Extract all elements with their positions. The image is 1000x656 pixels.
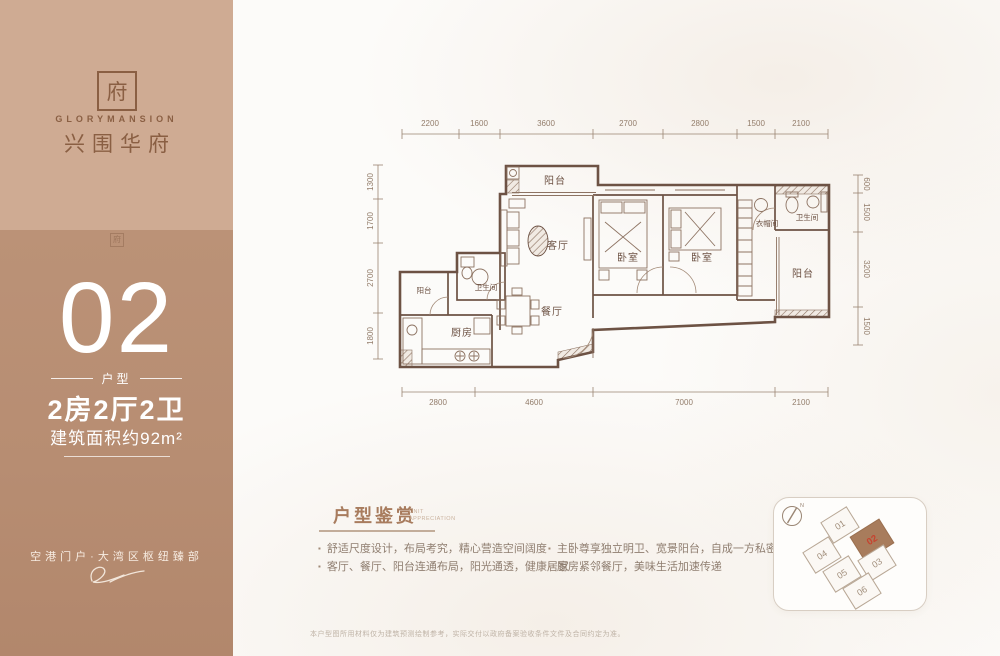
bullet-item: 厨房紧邻餐厅，美味生活加速传递 bbox=[548, 558, 799, 576]
svg-text:1800: 1800 bbox=[366, 327, 375, 345]
svg-text:2700: 2700 bbox=[366, 269, 375, 287]
svg-text:2200: 2200 bbox=[421, 119, 439, 128]
sidebar-divider bbox=[64, 456, 170, 457]
unit-number: 02 bbox=[0, 268, 233, 368]
svg-text:2700: 2700 bbox=[619, 119, 637, 128]
brand-name-en: GLORYMANSION bbox=[0, 114, 233, 124]
svg-text:2100: 2100 bbox=[792, 398, 810, 407]
room-cloakroom: 衣帽间 bbox=[756, 218, 779, 228]
svg-text:N: N bbox=[800, 503, 804, 509]
svg-text:1700: 1700 bbox=[366, 212, 375, 230]
appreciation-bullets-left: 舒适尺度设计，布局考究，精心营造空间阔度 客厅、餐厅、阳台连通布局，阳光通透，健… bbox=[318, 540, 569, 576]
svg-text:4600: 4600 bbox=[525, 398, 543, 407]
svg-text:1500: 1500 bbox=[747, 119, 765, 128]
unit-layout: 2房2厅2卫 bbox=[0, 388, 233, 427]
watermark-seal-icon: 府 bbox=[110, 233, 124, 247]
bullet-item: 主卧尊享独立明卫、宽景阳台，自成一方私密天地 bbox=[548, 540, 799, 558]
svg-text:2800: 2800 bbox=[429, 398, 447, 407]
site-map-svg: N 01 02 03 04 bbox=[774, 498, 926, 610]
svg-text:3200: 3200 bbox=[862, 260, 871, 278]
site-map: N 01 02 03 04 bbox=[773, 497, 927, 611]
sidebar: 府 GLORYMANSION 兴围华府 府 02 户型 2房2厅2卫 建筑面积约… bbox=[0, 0, 233, 656]
room-kitchen: 厨房 bbox=[451, 326, 473, 339]
bullet-item: 客厅、餐厅、阳台连通布局，阳光通透，健康居家 bbox=[318, 558, 569, 576]
seal-glyph: 府 bbox=[107, 81, 128, 104]
svg-text:1600: 1600 bbox=[470, 119, 488, 128]
room-bath-master: 卫生间 bbox=[796, 212, 819, 222]
dimension-right: 600 1500 3200 1500 bbox=[853, 175, 871, 345]
dimension-bottom: 2800 4600 7000 2100 bbox=[402, 387, 828, 407]
appreciation-title: 户型鉴赏 bbox=[333, 502, 417, 528]
room-bedroom1: 卧室 bbox=[617, 251, 639, 264]
brand-name-cn: 兴围华府 bbox=[0, 128, 233, 158]
svg-text:600: 600 bbox=[862, 177, 871, 191]
appreciation-subtitle: UNIT APPRECIATION bbox=[409, 509, 456, 523]
svg-text:1500: 1500 bbox=[862, 203, 871, 221]
dimension-top: 2200 1600 3600 2700 2800 1500 2100 bbox=[402, 119, 828, 139]
svg-text:1500: 1500 bbox=[862, 317, 871, 335]
room-balcony-master: 阳台 bbox=[792, 267, 814, 280]
svg-text:1300: 1300 bbox=[366, 173, 375, 191]
svg-text:7000: 7000 bbox=[675, 398, 693, 407]
poster-page: 府 GLORYMANSION 兴围华府 府 02 户型 2房2厅2卫 建筑面积约… bbox=[0, 0, 1000, 656]
dimension-left: 1300 1700 2700 1800 bbox=[366, 165, 383, 359]
bullet-item: 舒适尺度设计，布局考究，精心营造空间阔度 bbox=[318, 540, 569, 558]
compass-icon: N bbox=[783, 503, 805, 526]
disclaimer-text: 本户型图所用材料仅为建筑预测绘制参考，实际交付以政府备案验收条件文件及合同约定为… bbox=[310, 629, 625, 639]
svg-text:2800: 2800 bbox=[691, 119, 709, 128]
appreciation-bullets-right: 主卧尊享独立明卫、宽景阳台，自成一方私密天地 厨房紧邻餐厅，美味生活加速传递 bbox=[548, 540, 799, 576]
appreciation-underline bbox=[319, 530, 435, 532]
floor-plan: 2200 1600 3600 2700 2800 1500 2100 2800 … bbox=[360, 100, 880, 420]
dash-left bbox=[51, 378, 93, 379]
room-balcony-top: 阳台 bbox=[544, 174, 566, 187]
svg-text:2100: 2100 bbox=[792, 119, 810, 128]
unit-label-row: 户型 bbox=[0, 370, 233, 387]
room-dining: 餐厅 bbox=[541, 305, 563, 318]
unit-label: 户型 bbox=[101, 370, 131, 387]
dash-right bbox=[140, 378, 182, 379]
brand-seal-logo: 府 bbox=[96, 70, 138, 112]
signature-script bbox=[82, 562, 152, 588]
room-balcony-kitchen: 阳台 bbox=[417, 285, 432, 295]
main-area: 2200 1600 3600 2700 2800 1500 2100 2800 … bbox=[233, 0, 1000, 656]
svg-text:3600: 3600 bbox=[537, 119, 555, 128]
room-bath-guest: 卫生间 bbox=[475, 282, 498, 292]
room-living: 客厅 bbox=[547, 239, 569, 252]
unit-area: 建筑面积约92m² bbox=[0, 424, 233, 449]
room-bedroom2: 卧室 bbox=[691, 251, 713, 264]
